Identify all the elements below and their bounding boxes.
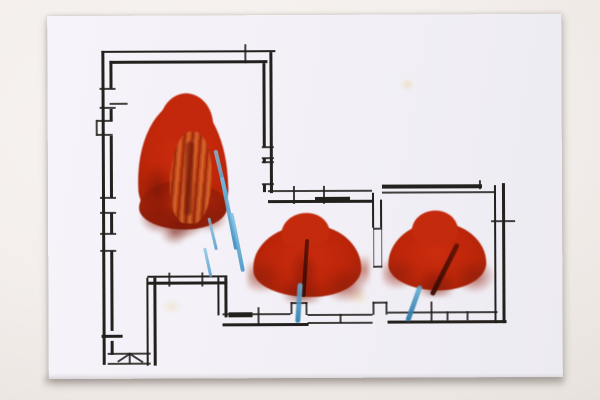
window-tick <box>340 314 342 323</box>
wall-line <box>110 251 113 331</box>
wall-tick <box>479 180 481 189</box>
paint-stain <box>160 299 182 315</box>
wall-line <box>372 193 374 228</box>
wall-line <box>263 184 266 192</box>
wall-line <box>101 50 275 53</box>
wall-tick <box>244 44 246 63</box>
wall-line <box>502 183 506 323</box>
window-tick <box>168 273 170 287</box>
window-tick <box>262 157 274 159</box>
window-tick <box>262 161 274 163</box>
paper-shadow <box>44 377 564 387</box>
window-sill <box>315 197 350 202</box>
wall-dash <box>102 335 123 338</box>
window-tick <box>201 272 203 286</box>
wall-line <box>382 184 482 188</box>
wall-line <box>223 323 309 326</box>
wall-line <box>146 278 148 366</box>
window-tick <box>257 307 259 325</box>
paint-stain <box>399 78 415 92</box>
artwork-paper <box>47 14 563 379</box>
window-sill <box>110 103 128 105</box>
photograph-background <box>0 0 600 400</box>
window-tick <box>430 301 432 323</box>
wall-line <box>110 213 113 234</box>
wall-line <box>110 136 113 198</box>
wall-line <box>101 51 105 365</box>
wall-line <box>382 191 495 193</box>
window-tick <box>467 311 469 320</box>
window-line <box>373 228 374 268</box>
window-tick <box>373 266 382 268</box>
window-tick <box>97 120 113 122</box>
floor-plan <box>47 14 563 379</box>
wall-line <box>262 63 265 147</box>
wall-line <box>380 200 382 228</box>
wall-line <box>153 278 156 366</box>
wall-line <box>494 185 497 323</box>
wall-line <box>268 190 372 192</box>
window-tick <box>447 311 449 320</box>
window-tick <box>100 250 116 252</box>
window-sill <box>229 312 253 317</box>
wall-line <box>388 311 498 313</box>
wall-line <box>224 277 227 317</box>
window-tick <box>100 233 116 235</box>
window-tick <box>323 186 325 204</box>
tree-2 <box>251 213 365 305</box>
wall-line <box>217 277 219 315</box>
window-tick <box>100 107 116 109</box>
wall-line <box>109 61 112 89</box>
window-tick <box>262 183 274 185</box>
tree-3 <box>386 210 490 300</box>
window-tick <box>262 146 274 148</box>
window-tick <box>293 186 295 204</box>
window-tick <box>97 134 113 136</box>
wall-line <box>147 275 227 277</box>
window-tick <box>491 220 515 222</box>
wall-line <box>147 281 227 284</box>
window-tick <box>100 212 116 214</box>
wall-line <box>269 52 273 193</box>
window-tick <box>373 228 382 230</box>
window-tick <box>100 88 116 90</box>
window-tick <box>96 120 98 136</box>
window-tick <box>100 197 116 199</box>
